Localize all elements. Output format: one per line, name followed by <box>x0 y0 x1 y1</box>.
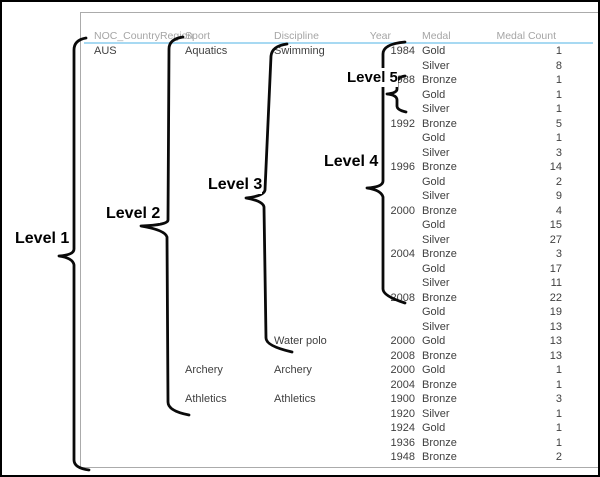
table-row[interactable]: 1992 Bronze 5 <box>85 117 596 132</box>
cell-year[interactable]: 2000 <box>344 335 415 347</box>
cell-medal-count[interactable]: 1 <box>492 364 562 376</box>
cell-medal[interactable]: Gold <box>415 306 492 318</box>
cell-medal[interactable]: Gold <box>415 176 492 188</box>
cell-medal[interactable]: Silver <box>415 190 492 202</box>
cell-medal[interactable]: Bronze <box>415 248 492 260</box>
cell-medal[interactable]: Bronze <box>415 393 492 405</box>
cell-year[interactable]: 2004 <box>344 248 415 260</box>
table-row[interactable]: 1920 Silver 1 <box>85 407 596 422</box>
cell-medal[interactable]: Gold <box>415 89 492 101</box>
table-row[interactable]: 2000 Bronze 4 <box>85 204 596 219</box>
table-row[interactable]: Athletics Athletics 1900 Bronze 3 <box>85 392 596 407</box>
cell-year[interactable]: 2000 <box>344 205 415 217</box>
cell-year[interactable]: 1920 <box>344 408 415 420</box>
cell-medal-count[interactable]: 14 <box>492 161 562 173</box>
cell-medal[interactable]: Gold <box>415 422 492 434</box>
cell-medal[interactable]: Silver <box>415 321 492 333</box>
table-row[interactable]: 2004 Bronze 1 <box>85 378 596 393</box>
cell-medal[interactable]: Gold <box>415 219 492 231</box>
cell-year[interactable]: 2008 <box>344 350 415 362</box>
cell-medal[interactable]: Gold <box>415 364 492 376</box>
cell-year[interactable]: 1900 <box>344 393 415 405</box>
col-header-noc-countryregion[interactable]: NOC_CountryRegion <box>85 30 185 42</box>
cell-medal-count[interactable]: 27 <box>492 234 562 246</box>
table-row[interactable]: 2008 Bronze 22 <box>85 291 596 306</box>
cell-medal-count[interactable]: 19 <box>492 306 562 318</box>
cell-medal[interactable]: Silver <box>415 103 492 115</box>
level-5-label: Level 5 <box>347 68 398 87</box>
matrix-header-row: NOC_CountryRegion Sport Discipline Year … <box>85 29 596 43</box>
cell-medal[interactable]: Bronze <box>415 161 492 173</box>
cell-year[interactable]: 1984 <box>344 45 415 57</box>
cell-medal-count[interactable]: 5 <box>492 118 562 130</box>
table-row[interactable]: 1924 Gold 1 <box>85 421 596 436</box>
table-row[interactable]: Gold 19 <box>85 305 596 320</box>
cell-medal-count[interactable]: 13 <box>492 335 562 347</box>
level-3-label: Level 3 <box>208 175 262 194</box>
cell-year[interactable]: 1924 <box>344 422 415 434</box>
cell-medal[interactable]: Bronze <box>415 118 492 130</box>
table-row[interactable]: Gold 15 <box>85 218 596 233</box>
cell-medal-count[interactable]: 1 <box>492 379 562 391</box>
cell-medal[interactable]: Bronze <box>415 74 492 86</box>
cell-year[interactable]: 1948 <box>344 451 415 463</box>
cell-sport[interactable]: Archery <box>185 364 274 376</box>
cell-medal[interactable]: Bronze <box>415 437 492 449</box>
cell-medal-count[interactable]: 3 <box>492 248 562 260</box>
cell-medal[interactable]: Gold <box>415 263 492 275</box>
cell-sport[interactable]: Aquatics <box>185 45 274 57</box>
cell-discipline[interactable]: Archery <box>274 364 344 376</box>
table-row[interactable]: Silver 27 <box>85 233 596 248</box>
table-row[interactable]: 1936 Bronze 1 <box>85 436 596 451</box>
cell-medal-count[interactable]: 8 <box>492 60 562 72</box>
level-4-label: Level 4 <box>324 152 378 171</box>
cell-medal-count[interactable]: 4 <box>492 205 562 217</box>
table-row[interactable]: 1948 Bronze 2 <box>85 450 596 465</box>
table-row[interactable]: Silver 11 <box>85 276 596 291</box>
cell-noc-countryregion[interactable]: AUS <box>85 45 185 57</box>
cell-discipline[interactable]: Water polo <box>274 335 344 347</box>
matrix-visual: NOC_CountryRegion Sport Discipline Year … <box>80 12 599 468</box>
cell-year[interactable]: 2000 <box>344 364 415 376</box>
cell-medal[interactable]: Silver <box>415 408 492 420</box>
cell-medal[interactable]: Gold <box>415 335 492 347</box>
cell-medal-count[interactable]: 2 <box>492 451 562 463</box>
table-row[interactable]: 2008 Bronze 13 <box>85 349 596 364</box>
table-row[interactable]: Silver 1 <box>85 102 596 117</box>
cell-medal-count[interactable]: 1 <box>492 408 562 420</box>
cell-medal-count[interactable]: 22 <box>492 292 562 304</box>
cell-medal-count[interactable]: 1 <box>492 422 562 434</box>
cell-medal[interactable]: Bronze <box>415 379 492 391</box>
cell-medal-count[interactable]: 1 <box>492 103 562 115</box>
cell-discipline[interactable]: Athletics <box>274 393 344 405</box>
cell-medal-count[interactable]: 1 <box>492 132 562 144</box>
table-row[interactable]: Gold 17 <box>85 262 596 277</box>
cell-medal[interactable]: Silver <box>415 277 492 289</box>
cell-medal-count[interactable]: 1 <box>492 74 562 86</box>
cell-year[interactable]: 1992 <box>344 118 415 130</box>
cell-medal-count[interactable]: 1 <box>492 89 562 101</box>
cell-medal-count[interactable]: 13 <box>492 350 562 362</box>
cell-medal-count[interactable]: 3 <box>492 393 562 405</box>
cell-medal[interactable]: Silver <box>415 147 492 159</box>
cell-medal[interactable]: Gold <box>415 45 492 57</box>
table-row[interactable]: 1988 Bronze 1 <box>85 73 596 88</box>
cell-sport[interactable]: Athletics <box>185 393 274 405</box>
col-header-sport[interactable]: Sport <box>185 30 274 42</box>
col-header-year[interactable]: Year <box>344 30 415 42</box>
table-row[interactable]: AUS Aquatics Swimming 1984 Gold 1 <box>85 44 596 59</box>
cell-medal-count[interactable]: 13 <box>492 321 562 333</box>
cell-medal[interactable]: Bronze <box>415 292 492 304</box>
cell-medal-count[interactable]: 3 <box>492 147 562 159</box>
cell-year[interactable]: 2004 <box>344 379 415 391</box>
cell-discipline[interactable]: Swimming <box>274 45 344 57</box>
cell-medal[interactable]: Bronze <box>415 350 492 362</box>
screenshot-frame: NOC_CountryRegion Sport Discipline Year … <box>0 0 600 477</box>
table-row[interactable]: Gold 2 <box>85 175 596 190</box>
cell-medal-count[interactable]: 15 <box>492 219 562 231</box>
cell-medal-count[interactable]: 1 <box>492 437 562 449</box>
col-header-discipline[interactable]: Discipline <box>274 30 344 42</box>
cell-year[interactable]: 1936 <box>344 437 415 449</box>
cell-medal[interactable]: Bronze <box>415 205 492 217</box>
table-row[interactable]: Water polo 2000 Gold 13 <box>85 334 596 349</box>
col-header-medal-count[interactable]: Medal Count <box>492 30 562 42</box>
table-row[interactable]: Silver 13 <box>85 320 596 335</box>
cell-year[interactable]: 2008 <box>344 292 415 304</box>
matrix-rows: AUS Aquatics Swimming 1984 Gold 1 Silver… <box>85 44 596 465</box>
cell-medal[interactable]: Silver <box>415 60 492 72</box>
level-1-label: Level 1 <box>15 229 69 248</box>
cell-medal[interactable]: Silver <box>415 234 492 246</box>
cell-medal-count[interactable]: 2 <box>492 176 562 188</box>
table-row[interactable]: Silver 9 <box>85 189 596 204</box>
table-row[interactable]: 2004 Bronze 3 <box>85 247 596 262</box>
table-row[interactable]: Gold 1 <box>85 88 596 103</box>
cell-medal[interactable]: Gold <box>415 132 492 144</box>
level-2-label: Level 2 <box>106 204 160 223</box>
cell-medal[interactable]: Bronze <box>415 451 492 463</box>
table-row[interactable]: Silver 8 <box>85 59 596 74</box>
col-header-medal[interactable]: Medal <box>415 30 492 42</box>
cell-medal-count[interactable]: 11 <box>492 277 562 289</box>
table-row[interactable]: Gold 1 <box>85 131 596 146</box>
table-row[interactable]: Archery Archery 2000 Gold 1 <box>85 363 596 378</box>
cell-medal-count[interactable]: 17 <box>492 263 562 275</box>
cell-medal-count[interactable]: 9 <box>492 190 562 202</box>
cell-medal-count[interactable]: 1 <box>492 45 562 57</box>
